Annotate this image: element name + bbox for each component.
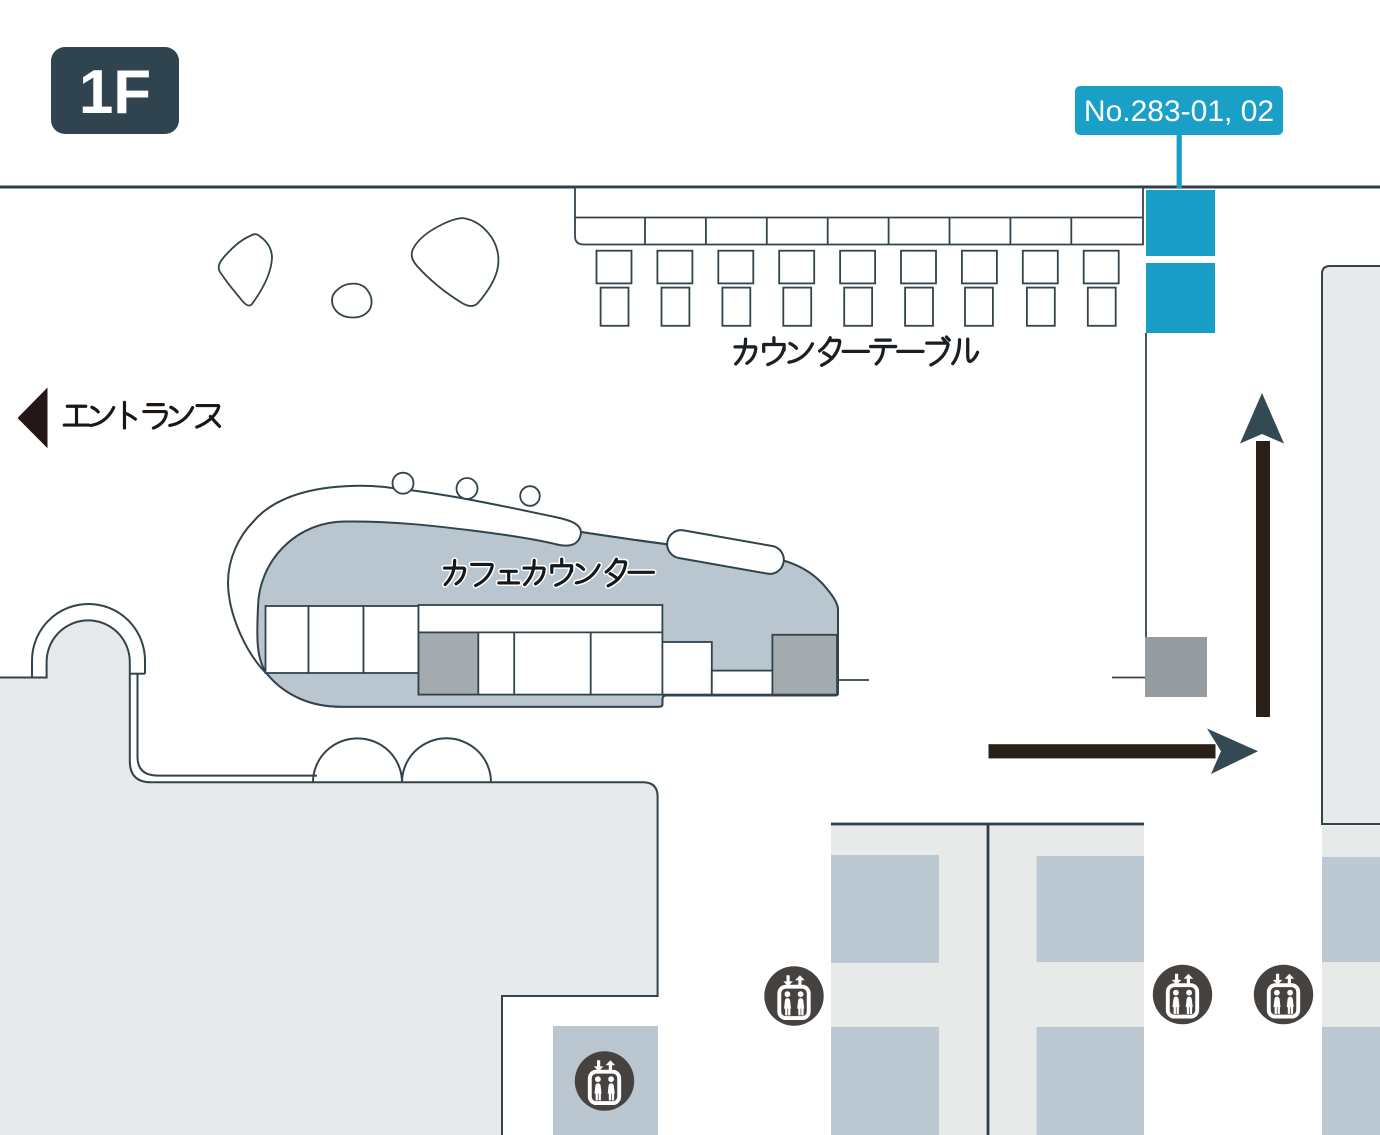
- svg-text:No.283-01, 02: No.283-01, 02: [1084, 95, 1274, 128]
- svg-text:1F: 1F: [79, 58, 151, 127]
